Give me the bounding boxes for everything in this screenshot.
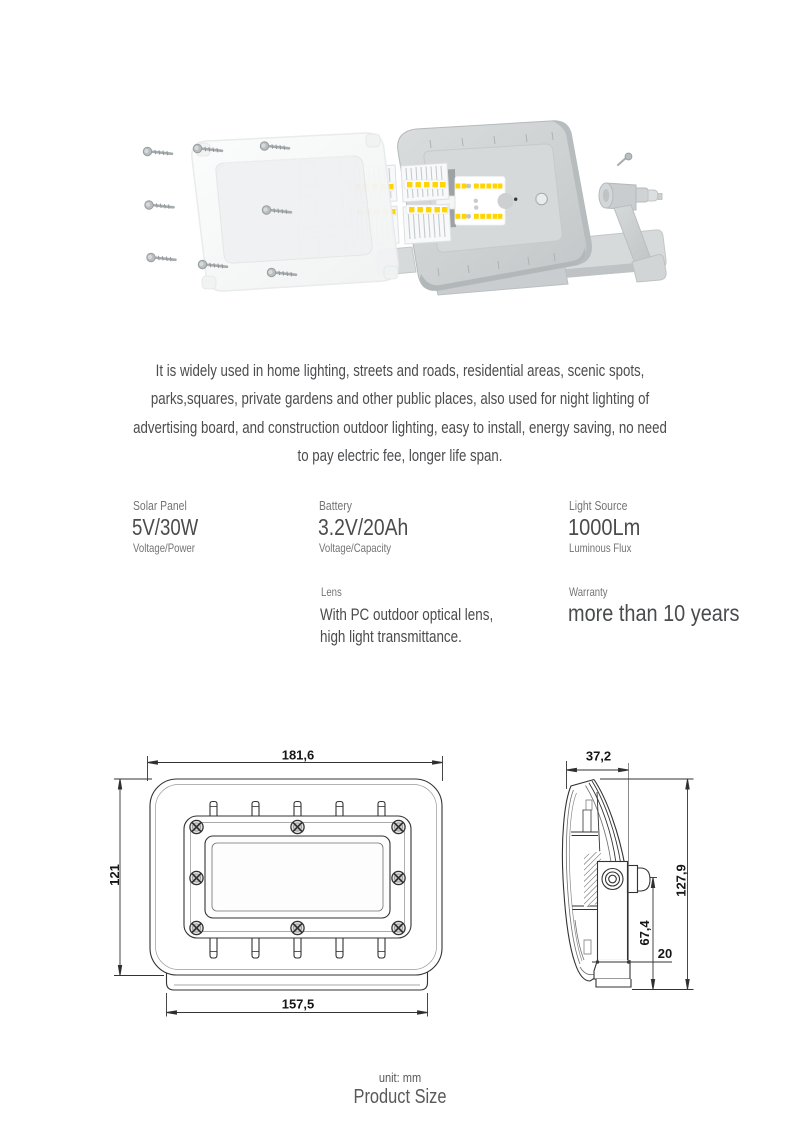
svg-text:181,6: 181,6 [282, 748, 315, 763]
svg-text:37,2: 37,2 [586, 749, 611, 764]
svg-text:127,9: 127,9 [674, 864, 689, 897]
svg-text:121: 121 [107, 864, 122, 886]
svg-text:20: 20 [658, 946, 672, 961]
svg-text:67,4: 67,4 [637, 920, 652, 946]
svg-text:157,5: 157,5 [282, 997, 315, 1012]
